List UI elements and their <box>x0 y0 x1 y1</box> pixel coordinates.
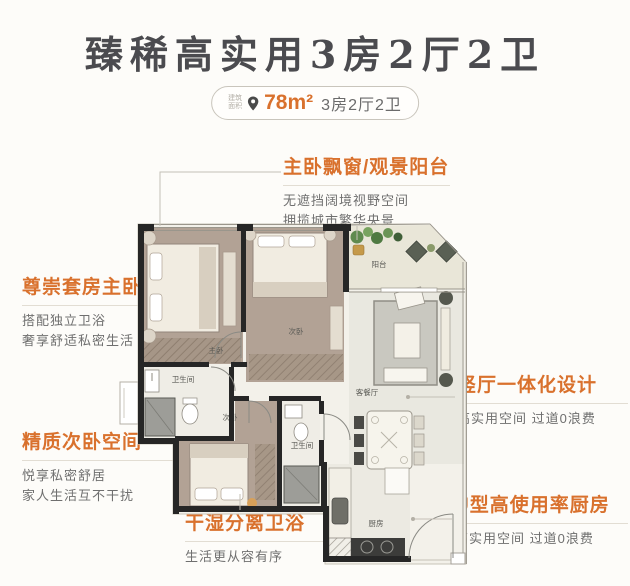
area-value: 78m² <box>264 91 313 115</box>
room-label-balcony: 阳台 <box>372 259 387 269</box>
annotation-heading: 竖厅一体化设计 <box>457 370 628 397</box>
room-label-kitchen: 厨房 <box>369 518 384 528</box>
annotation-living-hall: 竖厅一体化设计 高实用空间 过道0浪费 <box>457 370 628 429</box>
room-label-bedroom2: 次卧 <box>289 326 304 336</box>
divider <box>457 403 628 404</box>
room-label-living: 客餐厅 <box>356 387 379 397</box>
layout-text: 3房2厅2卫 <box>321 91 402 115</box>
room-label-bathroom1: 卫生间 <box>172 374 195 384</box>
page-title: 臻稀高实用3房2厅2卫 <box>0 24 630 79</box>
annotation-heading: U型高使用率厨房 <box>455 490 628 517</box>
area-prefix: 建筑 面积 <box>228 95 242 111</box>
ac-platform <box>120 382 138 424</box>
annotation-heading: 主卧飘窗/观景阳台 <box>283 152 450 179</box>
annotation-kitchen: U型高使用率厨房 高实用空间 过道0浪费 <box>455 490 628 549</box>
floorplan-drawing: 主卧 次卧 阳台 <box>113 210 471 572</box>
area-badge: 建筑 面积 78m² 3房2厅2卫 <box>211 86 419 120</box>
room-label-bathroom2: 卫生间 <box>291 440 314 450</box>
location-pin-icon <box>247 96 259 111</box>
floorplan-poster: 臻稀高实用3房2厅2卫 建筑 面积 78m² 3房2厅2卫 主卧飘窗/观景阳台 … <box>0 0 630 586</box>
divider <box>455 523 628 524</box>
divider <box>283 185 450 186</box>
bedroom3-furniture <box>190 444 275 508</box>
